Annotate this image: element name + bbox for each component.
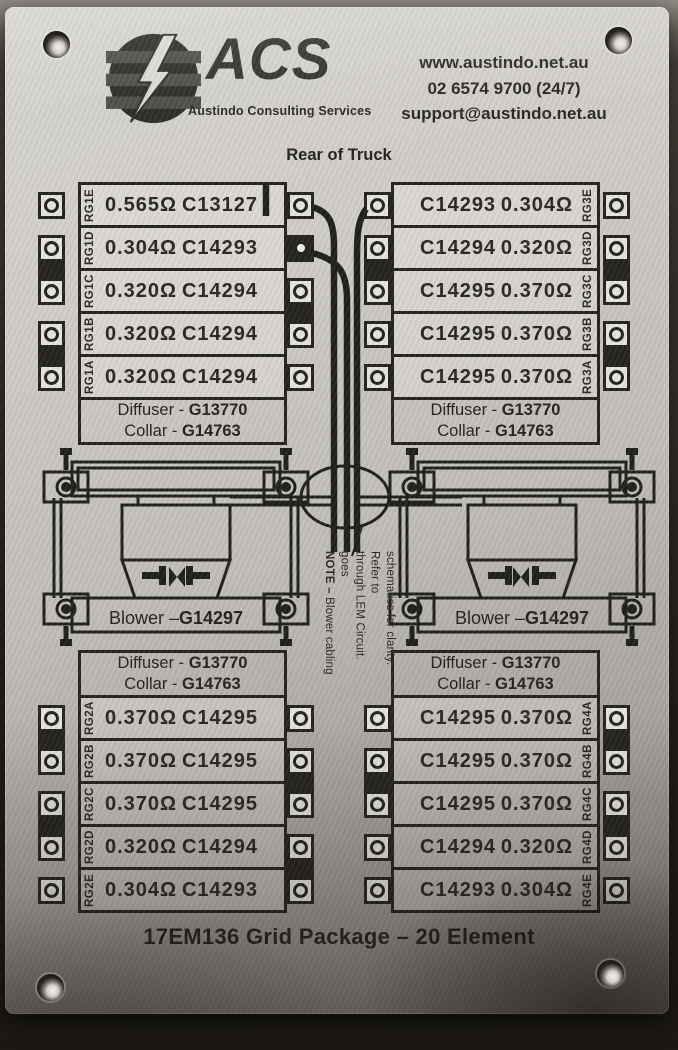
grid-row: RG2A0.370ΩC14295 (78, 695, 287, 741)
part-number: C13127 (182, 194, 258, 217)
grid-rows: C142930.304ΩRG3E C142940.320ΩRG3D C14295… (391, 182, 600, 400)
grid-row: C142950.370ΩRG3C (391, 268, 600, 314)
terminal (364, 834, 391, 861)
resistance-value: 0.320Ω (105, 280, 177, 303)
lem-circuit-note: NOTE – Blower cabling goes through LEM C… (321, 551, 397, 683)
resistance-value: 0.304Ω (105, 237, 177, 260)
mounting-hole-bottom-right (597, 960, 624, 987)
grid-rows: C142950.370ΩRG4A C142950.370ΩRG4B C14295… (391, 695, 600, 913)
element-id-label: RG4B (580, 741, 596, 781)
diffuser-collar-box: Diffuser - G13770 Collar - G14763 (391, 397, 600, 445)
part-number: C14294 (182, 280, 258, 303)
terminal (603, 364, 630, 391)
resistance-value: 0.304Ω (501, 879, 573, 902)
element-id-label: RG2D (82, 827, 98, 867)
collar-code: G14763 (182, 675, 241, 693)
acs-logo: ACS Austindo Consulting Services (104, 28, 404, 128)
element-id-label: RG2E (82, 870, 98, 910)
blower-label-right: Blower – G14297 (418, 604, 626, 632)
part-number: C14294 (420, 836, 496, 859)
terminal (38, 235, 65, 262)
terminal (603, 278, 630, 305)
collar-line: Collar - G14763 (437, 421, 553, 442)
part-number: C14295 (420, 323, 496, 346)
cable-terminal (287, 235, 314, 262)
terminal (603, 834, 630, 861)
grid-row: C142950.370ΩRG4A (391, 695, 600, 741)
part-number: C14295 (420, 750, 496, 773)
part-number: C14293 (182, 237, 258, 260)
logo-tagline: Austindo Consulting Services (188, 104, 371, 118)
diffuser-label: Diffuser - (431, 654, 502, 672)
phone-text: 02 6574 9700 (24/7) (378, 76, 630, 102)
terminal (603, 192, 630, 219)
logo-acronym: ACS (206, 26, 331, 93)
part-number: C14294 (182, 836, 258, 859)
terminal (38, 877, 65, 904)
plate-title: 17EM136 Grid Package – 20 Element (5, 924, 669, 950)
terminal (603, 877, 630, 904)
terminal (364, 877, 391, 904)
terminal (603, 791, 630, 818)
grid-row: RG1C0.320ΩC14294 (78, 268, 287, 314)
element-id-label: RG3B (580, 314, 596, 354)
terminal (287, 705, 314, 732)
terminal (38, 321, 65, 348)
diffuser-code: G13770 (502, 654, 561, 672)
grid-rows: RG2A0.370ΩC14295 RG2B0.370ΩC14295 RG2C0.… (78, 695, 287, 913)
terminal (603, 321, 630, 348)
grid-row: C142930.304ΩRG3E (391, 182, 600, 228)
terminal (287, 834, 314, 861)
diffuser-code: G13770 (502, 401, 561, 419)
element-id-label: RG3C (580, 271, 596, 311)
rear-of-truck-label: Rear of Truck (5, 146, 669, 165)
grid-row: RG1B0.320ΩC14294 (78, 311, 287, 357)
element-id-label: RG1A (82, 357, 98, 397)
blower-name: Blower – (109, 608, 179, 629)
part-number: C14295 (182, 750, 258, 773)
resistance-value: 0.370Ω (105, 707, 177, 730)
grid-row: RG2E0.304ΩC14293 (78, 867, 287, 913)
terminal (364, 748, 391, 775)
note-line-2: through LEM Circuit. Refer to (354, 551, 381, 660)
resistance-value: 0.320Ω (105, 836, 177, 859)
terminal (364, 791, 391, 818)
mounting-hole-top-left (43, 31, 70, 58)
element-id-label: RG2A (82, 698, 98, 738)
element-id-label: RG1C (82, 271, 98, 311)
resistance-value: 0.370Ω (501, 366, 573, 389)
resistance-value: 0.320Ω (105, 323, 177, 346)
element-id-label: RG4A (580, 698, 596, 738)
part-number: C14295 (420, 366, 496, 389)
diffuser-line: Diffuser - G13770 (431, 400, 561, 421)
grid-row: RG2B0.370ΩC14295 (78, 738, 287, 784)
resistance-value: 0.370Ω (105, 793, 177, 816)
diffuser-line: Diffuser - G13770 (118, 653, 248, 674)
terminal (38, 278, 65, 305)
terminal (364, 705, 391, 732)
note-heading: NOTE – (323, 551, 335, 597)
terminal (287, 877, 314, 904)
terminal (38, 791, 65, 818)
diffuser-collar-box: Diffuser - G13770 Collar - G14763 (391, 650, 600, 698)
collar-line: Collar - G14763 (124, 421, 240, 442)
collar-code: G14763 (182, 422, 241, 440)
element-id-label: RG4D (580, 827, 596, 867)
blower-code: G14297 (525, 608, 589, 629)
resistance-value: 0.370Ω (501, 323, 573, 346)
element-id-label: RG1E (82, 185, 98, 225)
collar-label: Collar - (437, 675, 495, 693)
element-id-label: RG1B (82, 314, 98, 354)
terminal (38, 364, 65, 391)
part-number: C14294 (182, 323, 258, 346)
resistance-value: 0.320Ω (105, 366, 177, 389)
terminal (364, 235, 391, 262)
part-number: C14295 (182, 707, 258, 730)
grid-row: C142940.320ΩRG4D (391, 824, 600, 870)
grid-row: RG2C0.370ΩC14295 (78, 781, 287, 827)
part-number: C14293 (420, 879, 496, 902)
resistance-value: 0.304Ω (105, 879, 177, 902)
grid-row: C142950.370ΩRG3A (391, 354, 600, 400)
terminal (38, 748, 65, 775)
resistance-value: 0.370Ω (501, 750, 573, 773)
resistance-value: 0.320Ω (501, 836, 573, 859)
collar-code: G14763 (495, 422, 554, 440)
contact-block: www.austindo.net.au 02 6574 9700 (24/7) … (378, 50, 630, 127)
blower-code: G14297 (179, 608, 243, 629)
resistance-value: 0.565Ω (105, 194, 177, 217)
terminal (287, 192, 314, 219)
collar-line: Collar - G14763 (124, 674, 240, 695)
terminal (287, 748, 314, 775)
resistance-value: 0.320Ω (501, 237, 573, 260)
terminal (38, 705, 65, 732)
collar-line: Collar - G14763 (437, 674, 553, 695)
part-number: C14295 (420, 280, 496, 303)
diffuser-line: Diffuser - G13770 (431, 653, 561, 674)
grid-row: RG2D0.320ΩC14294 (78, 824, 287, 870)
part-number: C14294 (182, 366, 258, 389)
grid-row: C142940.320ΩRG3D (391, 225, 600, 271)
blower-label-left: Blower – G14297 (72, 604, 280, 632)
collar-label: Collar - (124, 422, 182, 440)
grid-row: RG1D0.304ΩC14293 (78, 225, 287, 271)
element-id-label: RG4E (580, 870, 596, 910)
element-id-label: RG4C (580, 784, 596, 824)
terminal (38, 192, 65, 219)
collar-label: Collar - (124, 675, 182, 693)
diffuser-code: G13770 (189, 401, 248, 419)
engraved-metal-plate: ACS Austindo Consulting Services www.aus… (5, 7, 669, 1014)
collar-code: G14763 (495, 675, 554, 693)
grid-row: C142930.304ΩRG4E (391, 867, 600, 913)
mounting-hole-top-right (605, 27, 632, 54)
element-id-label: RG1D (82, 228, 98, 268)
collar-label: Collar - (437, 422, 495, 440)
diffuser-collar-box: Diffuser - G13770 Collar - G14763 (78, 397, 287, 445)
terminal (603, 235, 630, 262)
terminal (364, 278, 391, 305)
grid-row: RG1A0.320ΩC14294 (78, 354, 287, 400)
blower-name: Blower – (455, 608, 525, 629)
resistance-value: 0.370Ω (105, 750, 177, 773)
note-line-3: schematics for clarity. (384, 551, 396, 665)
terminal (603, 705, 630, 732)
element-id-label: RG2C (82, 784, 98, 824)
diffuser-line: Diffuser - G13770 (118, 400, 248, 421)
photo-of-metal-plate: { "plate": { "header": { "logo_acronym":… (0, 0, 678, 1050)
element-id-label: RG2B (82, 741, 98, 781)
mounting-hole-bottom-left (37, 974, 64, 1001)
element-id-label: RG3A (580, 357, 596, 397)
terminal (287, 321, 314, 348)
resistance-value: 0.370Ω (501, 793, 573, 816)
plate-content: ACS Austindo Consulting Services www.aus… (5, 7, 669, 1014)
element-id-label: RG3D (580, 228, 596, 268)
terminal (38, 834, 65, 861)
diffuser-label: Diffuser - (431, 401, 502, 419)
part-number: C14295 (182, 793, 258, 816)
lightning-bolt-logo-icon (106, 31, 201, 126)
terminal (364, 192, 391, 219)
diffuser-code: G13770 (189, 654, 248, 672)
terminal (287, 364, 314, 391)
diffuser-label: Diffuser - (118, 401, 189, 419)
part-number: C14294 (420, 237, 496, 260)
terminal (364, 321, 391, 348)
terminal (287, 791, 314, 818)
terminal (603, 748, 630, 775)
part-number: C14293 (420, 194, 496, 217)
grid-row: RG1E0.565ΩC13127 (78, 182, 287, 228)
diffuser-label: Diffuser - (118, 654, 189, 672)
grid-rows: RG1E0.565ΩC13127 RG1D0.304ΩC14293 RG1C0.… (78, 182, 287, 400)
grid-row: C142950.370ΩRG4C (391, 781, 600, 827)
diffuser-collar-box: Diffuser - G13770 Collar - G14763 (78, 650, 287, 698)
terminal (364, 364, 391, 391)
resistance-value: 0.370Ω (501, 707, 573, 730)
terminal (287, 278, 314, 305)
grid-row: C142950.370ΩRG3B (391, 311, 600, 357)
part-number: C14293 (182, 879, 258, 902)
resistance-value: 0.370Ω (501, 280, 573, 303)
resistance-value: 0.304Ω (501, 194, 573, 217)
website-text: www.austindo.net.au (378, 50, 630, 76)
part-number: C14295 (420, 793, 496, 816)
element-id-label: RG3E (580, 185, 596, 225)
grid-row: C142950.370ΩRG4B (391, 738, 600, 784)
part-number: C14295 (420, 707, 496, 730)
email-text: support@austindo.net.au (378, 101, 630, 127)
